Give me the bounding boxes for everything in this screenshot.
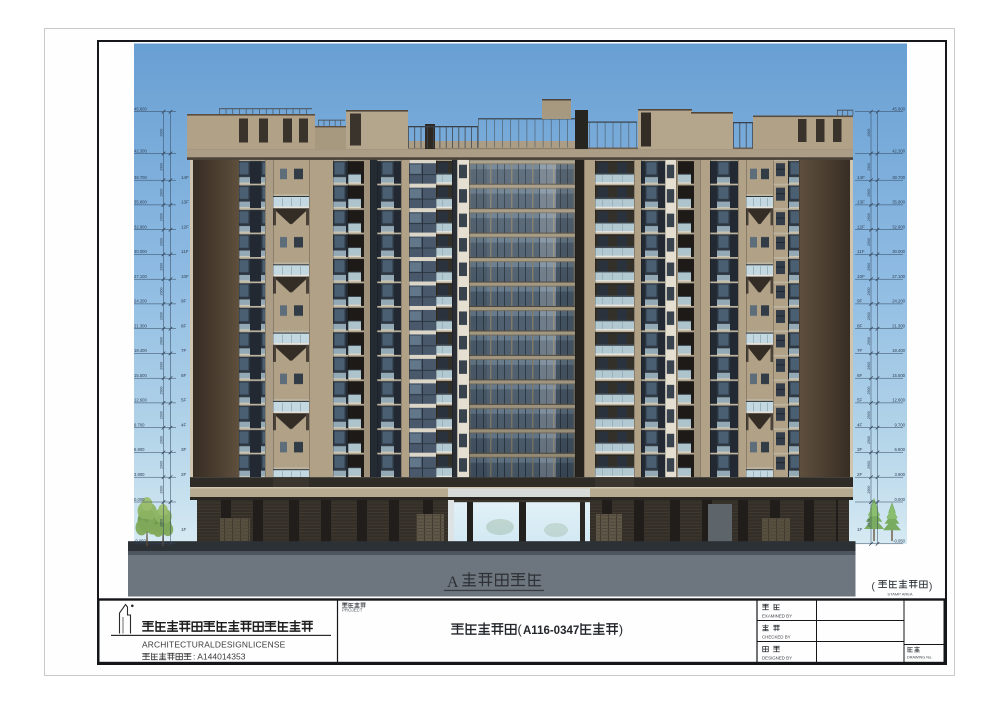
svg-text:12.600: 12.600 bbox=[134, 398, 147, 403]
svg-text:2900: 2900 bbox=[867, 213, 871, 221]
svg-text:2900: 2900 bbox=[867, 189, 871, 197]
svg-text:10F: 10F bbox=[181, 274, 189, 279]
svg-text:9F: 9F bbox=[181, 299, 187, 304]
svg-text:(: ( bbox=[518, 623, 523, 637]
svg-text:: A144014353: : A144014353 bbox=[193, 652, 246, 662]
svg-text:2900: 2900 bbox=[867, 362, 871, 370]
svg-text:2900: 2900 bbox=[159, 486, 163, 494]
svg-text:12F: 12F bbox=[857, 225, 865, 230]
svg-text:45.600: 45.600 bbox=[892, 107, 905, 112]
svg-text:21.300: 21.300 bbox=[892, 324, 905, 329]
svg-text:32.900: 32.900 bbox=[134, 225, 147, 230]
svg-text:-0.050: -0.050 bbox=[893, 539, 906, 544]
svg-text:1F: 1F bbox=[181, 527, 187, 532]
svg-text:14F: 14F bbox=[857, 175, 865, 180]
svg-text:2900: 2900 bbox=[159, 129, 163, 137]
svg-text:15.500: 15.500 bbox=[134, 373, 147, 378]
svg-text:3.900: 3.900 bbox=[895, 472, 906, 477]
svg-text:14F: 14F bbox=[181, 175, 189, 180]
svg-text:3F: 3F bbox=[181, 447, 187, 452]
svg-text:35.800: 35.800 bbox=[134, 200, 147, 205]
svg-text:2900: 2900 bbox=[159, 411, 163, 419]
svg-text:A116-0347: A116-0347 bbox=[523, 625, 579, 637]
svg-text:35.800: 35.800 bbox=[892, 200, 905, 205]
svg-text:11F: 11F bbox=[857, 249, 865, 254]
svg-text:10F: 10F bbox=[857, 274, 865, 279]
svg-text:45.600: 45.600 bbox=[134, 107, 147, 112]
svg-text:2900: 2900 bbox=[867, 519, 871, 527]
svg-text:2900: 2900 bbox=[867, 337, 871, 345]
svg-text:13F: 13F bbox=[181, 200, 189, 205]
svg-text:12.600: 12.600 bbox=[892, 398, 905, 403]
svg-text:2900: 2900 bbox=[159, 337, 163, 345]
svg-text:3.900: 3.900 bbox=[134, 472, 145, 477]
svg-text:): ) bbox=[929, 582, 932, 593]
svg-text:11F: 11F bbox=[181, 249, 189, 254]
svg-text:2900: 2900 bbox=[159, 436, 163, 444]
svg-text:4F: 4F bbox=[181, 423, 187, 428]
svg-text:DRAWING No.: DRAWING No. bbox=[907, 656, 932, 660]
svg-text:9.700: 9.700 bbox=[134, 423, 145, 428]
svg-text:2900: 2900 bbox=[159, 519, 163, 527]
svg-text:42.300: 42.300 bbox=[892, 148, 905, 153]
svg-text:8F: 8F bbox=[181, 324, 187, 329]
svg-text:6F: 6F bbox=[181, 373, 187, 378]
svg-text:7F: 7F bbox=[181, 348, 187, 353]
svg-text:2F: 2F bbox=[181, 472, 187, 477]
svg-text:38.700: 38.700 bbox=[892, 175, 905, 180]
svg-text:2900: 2900 bbox=[159, 362, 163, 370]
svg-text:2900: 2900 bbox=[159, 189, 163, 197]
svg-text:2900: 2900 bbox=[867, 263, 871, 271]
svg-text:9.700: 9.700 bbox=[895, 423, 906, 428]
svg-text:24.200: 24.200 bbox=[892, 299, 905, 304]
svg-text:3F: 3F bbox=[857, 447, 863, 452]
svg-text:15.500: 15.500 bbox=[892, 373, 905, 378]
svg-text:ARCHITECTURALDESIGNLICENSE: ARCHITECTURALDESIGNLICENSE bbox=[142, 640, 286, 650]
svg-text:2900: 2900 bbox=[159, 461, 163, 469]
svg-text:2900: 2900 bbox=[867, 163, 871, 171]
svg-text:CHECKED BY: CHECKED BY bbox=[762, 635, 791, 640]
svg-text:2900: 2900 bbox=[159, 312, 163, 320]
svg-text:6.800: 6.800 bbox=[134, 447, 145, 452]
svg-text:2900: 2900 bbox=[159, 213, 163, 221]
svg-text:30.000: 30.000 bbox=[892, 249, 905, 254]
svg-text:2900: 2900 bbox=[867, 312, 871, 320]
svg-text:6F: 6F bbox=[857, 373, 863, 378]
svg-text:2900: 2900 bbox=[867, 411, 871, 419]
svg-text:2900: 2900 bbox=[159, 387, 163, 395]
svg-text:21.300: 21.300 bbox=[134, 324, 147, 329]
svg-text:7F: 7F bbox=[857, 348, 863, 353]
svg-text:42.300: 42.300 bbox=[134, 148, 147, 153]
svg-text:12F: 12F bbox=[181, 225, 189, 230]
svg-text:18.400: 18.400 bbox=[134, 348, 147, 353]
svg-text:2900: 2900 bbox=[867, 288, 871, 296]
svg-text:30.000: 30.000 bbox=[134, 249, 147, 254]
svg-text:2900: 2900 bbox=[867, 461, 871, 469]
svg-text:27.100: 27.100 bbox=[892, 274, 905, 279]
svg-text:EXAMINED BY: EXAMINED BY bbox=[762, 614, 792, 619]
svg-text:5F: 5F bbox=[181, 398, 187, 403]
svg-text:24.200: 24.200 bbox=[134, 299, 147, 304]
svg-text:(: ( bbox=[872, 582, 876, 593]
svg-text:4F: 4F bbox=[857, 423, 863, 428]
svg-text:38.700: 38.700 bbox=[134, 175, 147, 180]
svg-text:2900: 2900 bbox=[159, 238, 163, 246]
svg-text:27.100: 27.100 bbox=[134, 274, 147, 279]
svg-text:2900: 2900 bbox=[867, 129, 871, 137]
svg-text:13F: 13F bbox=[857, 200, 865, 205]
svg-text:0.000: 0.000 bbox=[134, 497, 145, 502]
svg-text:2F: 2F bbox=[857, 472, 863, 477]
svg-text:2900: 2900 bbox=[867, 436, 871, 444]
svg-text:A: A bbox=[447, 574, 459, 591]
svg-text:2900: 2900 bbox=[867, 387, 871, 395]
svg-text:9F: 9F bbox=[857, 299, 863, 304]
svg-text:1F: 1F bbox=[857, 527, 863, 532]
svg-text:2900: 2900 bbox=[159, 163, 163, 171]
svg-text:2900: 2900 bbox=[159, 263, 163, 271]
svg-text:18.400: 18.400 bbox=[892, 348, 905, 353]
svg-text:5F: 5F bbox=[857, 398, 863, 403]
svg-text:2900: 2900 bbox=[159, 288, 163, 296]
svg-text:2900: 2900 bbox=[867, 238, 871, 246]
svg-text:32.900: 32.900 bbox=[892, 225, 905, 230]
svg-text:0.000: 0.000 bbox=[895, 497, 906, 502]
svg-text:DESIGNED BY: DESIGNED BY bbox=[762, 656, 792, 661]
svg-text:STAMP AREA: STAMP AREA bbox=[887, 592, 913, 597]
svg-text:6.800: 6.800 bbox=[895, 447, 906, 452]
svg-text:8F: 8F bbox=[857, 324, 863, 329]
svg-text:PROJECT: PROJECT bbox=[342, 608, 363, 613]
svg-text:-0.050: -0.050 bbox=[134, 539, 147, 544]
svg-text:2900: 2900 bbox=[867, 486, 871, 494]
svg-text:): ) bbox=[619, 623, 623, 637]
